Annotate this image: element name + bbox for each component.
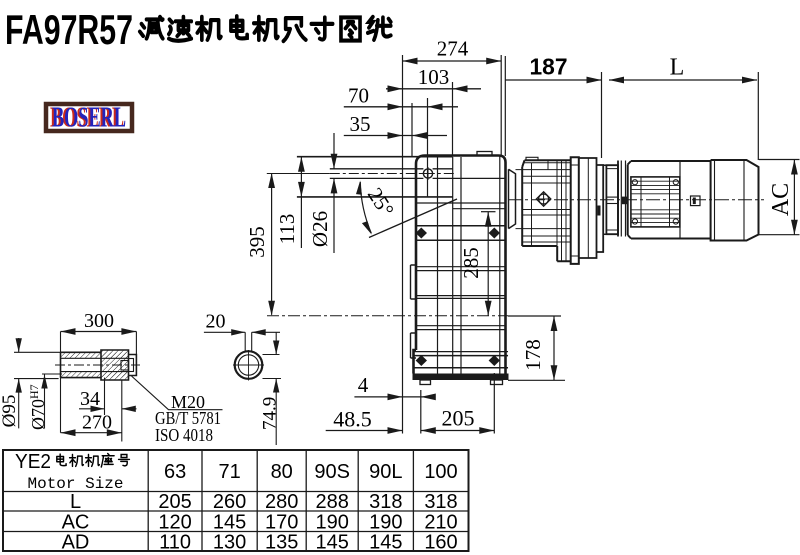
svg-text:270: 270 <box>82 412 112 434</box>
svg-text:187: 187 <box>530 54 568 80</box>
svg-text:FA97R57: FA97R57 <box>5 6 133 53</box>
svg-text:63: 63 <box>164 461 186 483</box>
svg-text:135: 135 <box>265 532 298 554</box>
svg-text:Ø95: Ø95 <box>0 395 20 428</box>
svg-text:190: 190 <box>369 512 402 534</box>
svg-text:190: 190 <box>316 512 349 534</box>
svg-text:145: 145 <box>316 532 349 554</box>
svg-text:205: 205 <box>442 406 475 431</box>
svg-text:130: 130 <box>213 532 246 554</box>
svg-text:395: 395 <box>245 226 269 258</box>
svg-text:170: 170 <box>265 512 298 534</box>
svg-text:110: 110 <box>159 532 191 554</box>
svg-text:90L: 90L <box>369 461 402 483</box>
svg-text:300: 300 <box>84 310 114 332</box>
svg-text:AC: AC <box>768 183 794 216</box>
svg-text:Ø26: Ø26 <box>308 211 332 247</box>
svg-text:288: 288 <box>316 491 349 513</box>
svg-text:145: 145 <box>213 512 246 534</box>
svg-text:L: L <box>70 491 81 513</box>
svg-text:318: 318 <box>369 491 402 513</box>
svg-text:103: 103 <box>418 65 450 89</box>
svg-text:AD: AD <box>62 532 90 554</box>
svg-text:160: 160 <box>424 532 457 554</box>
svg-text:YE2: YE2 <box>15 451 51 473</box>
svg-text:285: 285 <box>459 247 483 279</box>
svg-text:71: 71 <box>218 461 240 483</box>
svg-text:AC: AC <box>62 512 90 534</box>
svg-text:74.9: 74.9 <box>260 397 281 430</box>
svg-text:80: 80 <box>271 461 293 483</box>
svg-text:20: 20 <box>206 311 226 333</box>
svg-text:274: 274 <box>437 37 469 61</box>
svg-text:70: 70 <box>348 84 369 108</box>
svg-text:113: 113 <box>275 214 299 245</box>
svg-text:35: 35 <box>350 112 371 136</box>
svg-text:48.5: 48.5 <box>333 407 372 432</box>
svg-text:34: 34 <box>80 388 100 410</box>
svg-text:145: 145 <box>369 532 402 554</box>
svg-text:L: L <box>670 55 685 81</box>
svg-text:205: 205 <box>158 491 191 513</box>
svg-text:280: 280 <box>265 491 298 513</box>
svg-text:210: 210 <box>424 512 457 534</box>
svg-text:BOSERL: BOSERL <box>52 103 126 134</box>
svg-text:178: 178 <box>521 339 545 371</box>
svg-text:90S: 90S <box>314 461 350 483</box>
svg-text:4: 4 <box>358 373 369 397</box>
svg-text:318: 318 <box>424 491 457 513</box>
svg-text:120: 120 <box>158 512 191 534</box>
svg-text:260: 260 <box>213 491 246 513</box>
svg-text:ISO 4018: ISO 4018 <box>155 425 213 445</box>
svg-text:100: 100 <box>424 461 457 483</box>
